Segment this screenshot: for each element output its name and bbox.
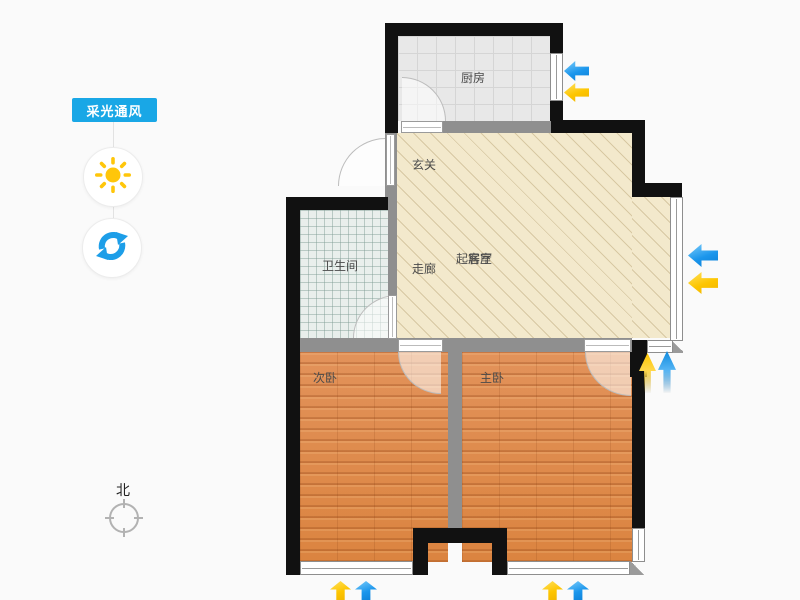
second-bedroom-window bbox=[300, 561, 413, 575]
wall-right-upper bbox=[632, 133, 645, 185]
wall-kitchen-left bbox=[385, 23, 398, 133]
wall-bathroom-right bbox=[388, 197, 397, 296]
room-label-corridor: 走廊 bbox=[412, 260, 436, 277]
wall-bedroom-divider bbox=[448, 352, 462, 528]
wall-bathroom-top bbox=[286, 197, 397, 210]
room-label-kitchen: 厨房 bbox=[461, 69, 485, 86]
wall-left bbox=[286, 197, 300, 575]
wall-notch-left bbox=[413, 543, 428, 575]
kitchen-window bbox=[550, 53, 563, 101]
wall-living-top bbox=[551, 120, 645, 133]
blue-up-arrow-icon bbox=[567, 581, 589, 600]
floorplan-canvas: 厨房 玄关 卫生间 走廊 起居室 客厅 次卧 主卧 bbox=[0, 0, 800, 600]
hall-floor-east-extension bbox=[632, 197, 670, 338]
master-bedroom-door-leaf bbox=[584, 339, 631, 352]
wall-right-mid bbox=[632, 352, 645, 528]
room-label-bathroom: 卫生间 bbox=[322, 257, 358, 274]
wall-notch-right bbox=[492, 543, 507, 575]
wall-kitchen-bottom bbox=[443, 121, 551, 133]
blue-left-arrow-icon bbox=[688, 244, 718, 267]
wall-kitchen-top bbox=[385, 23, 563, 36]
second-bedroom-door-leaf bbox=[398, 339, 443, 352]
wall-kitchen-right-upper bbox=[550, 23, 563, 53]
blue-up-arrow-icon bbox=[658, 351, 676, 393]
yellow-left-arrow-icon bbox=[688, 272, 718, 294]
master-bedroom-side-window bbox=[632, 528, 645, 562]
corner-triangle-east bbox=[673, 340, 683, 353]
yellow-left-arrow-icon bbox=[564, 83, 589, 102]
yellow-up-arrow-icon bbox=[542, 581, 563, 600]
entry-door-swing bbox=[338, 138, 386, 186]
room-label-master-bedroom: 主卧 bbox=[480, 369, 504, 386]
wall-bedrooms-top bbox=[300, 338, 632, 352]
living-south-small-window bbox=[647, 340, 673, 353]
yellow-up-arrow-icon bbox=[330, 581, 351, 600]
wall-right-step bbox=[632, 183, 682, 197]
room-label-entry: 玄关 bbox=[412, 156, 436, 173]
master-bedroom-window bbox=[507, 561, 630, 575]
room-label-living-alt: 客厅 bbox=[468, 250, 492, 267]
corner-triangle-southeast bbox=[630, 561, 645, 575]
entry-door-leaf bbox=[386, 134, 395, 186]
room-label-second-bedroom: 次卧 bbox=[313, 369, 337, 386]
floorplan-viewer: { "panel": { "badge_label": "采光通风", "bad… bbox=[0, 0, 800, 600]
blue-up-arrow-icon bbox=[355, 581, 377, 600]
living-room-window bbox=[670, 197, 683, 341]
kitchen-door-leaf bbox=[401, 121, 443, 133]
bathroom-door-leaf bbox=[388, 295, 397, 339]
blue-left-arrow-icon bbox=[564, 61, 589, 81]
wall-notch-top bbox=[413, 528, 507, 543]
